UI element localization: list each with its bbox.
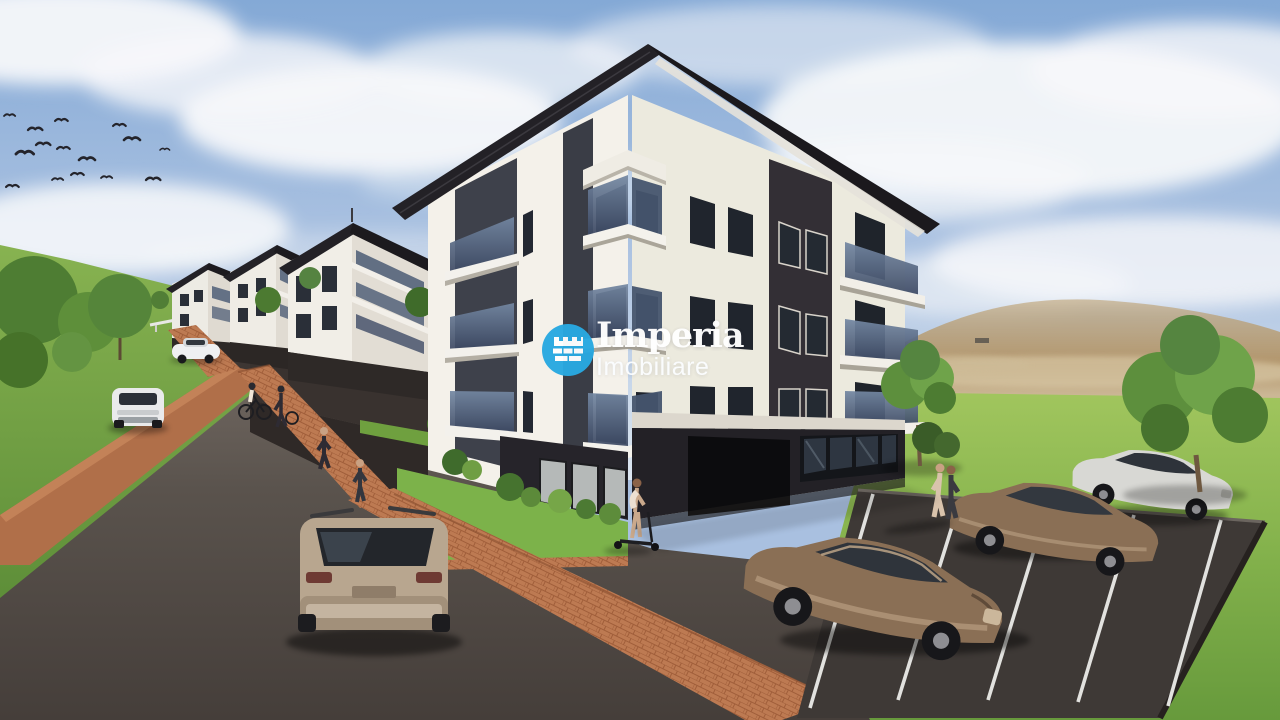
right-dark-panel [769, 159, 832, 457]
architectural-rendering: Imperia Imobiliare [0, 0, 1280, 720]
suv-white-road [108, 388, 168, 434]
suv-champagne-rear [286, 508, 462, 656]
corner-balconies [583, 150, 666, 458]
left-balcony-column [445, 158, 519, 470]
rendering-scene [0, 0, 1280, 720]
left-narrow-windows [523, 210, 533, 433]
